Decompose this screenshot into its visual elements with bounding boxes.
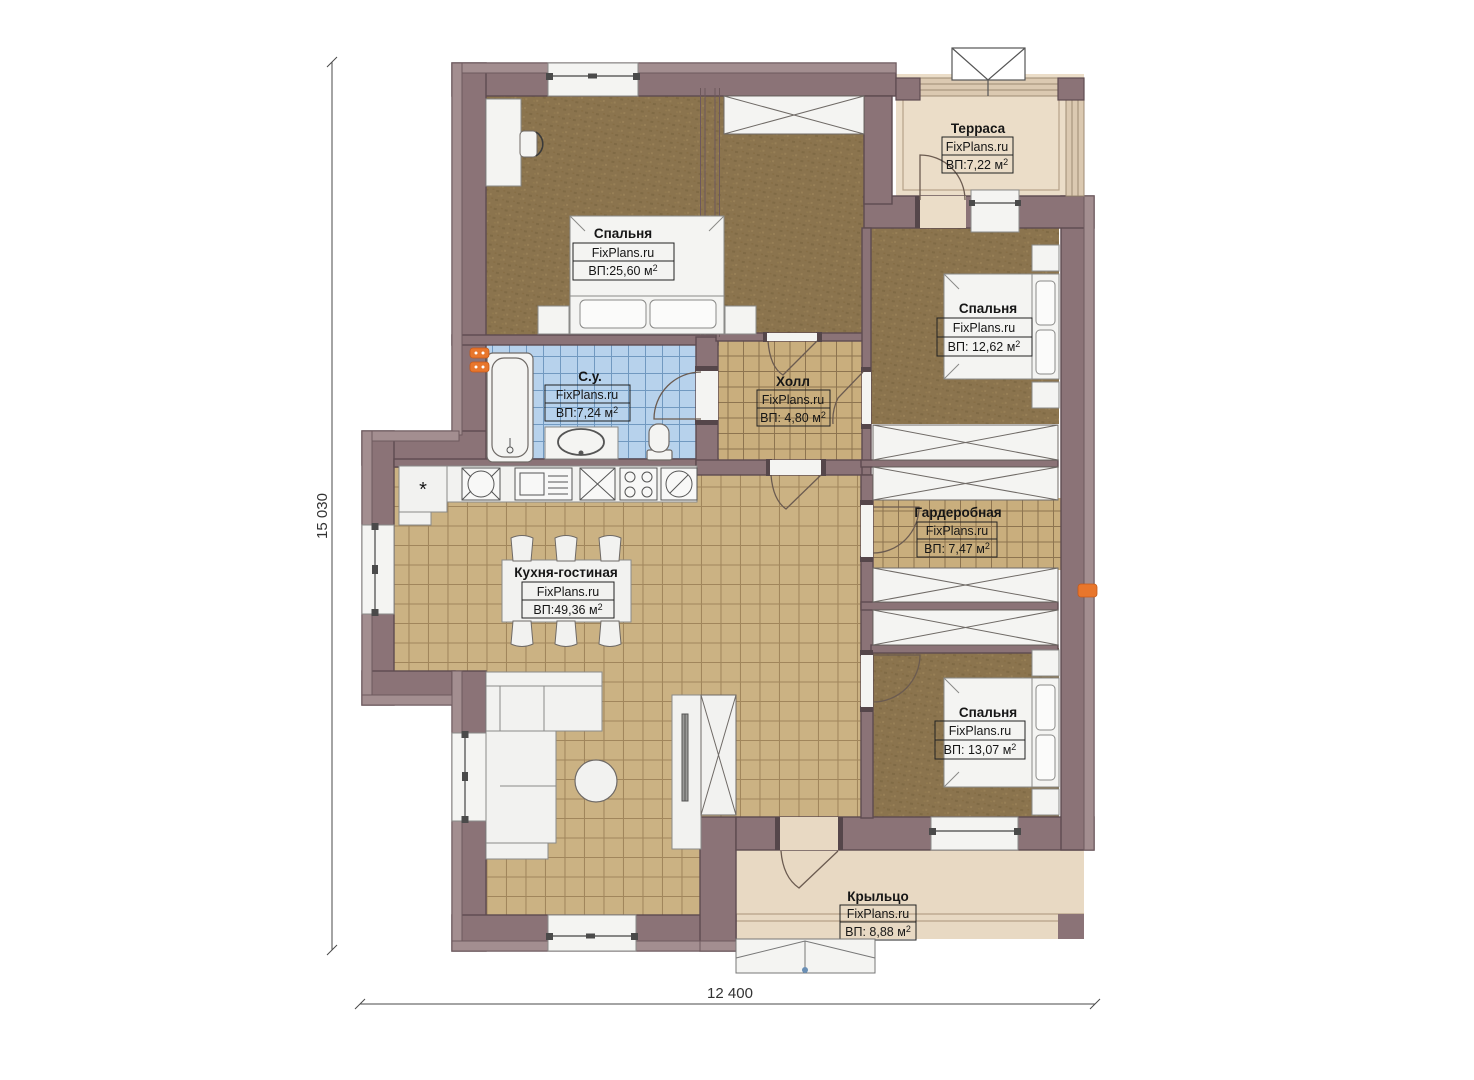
svg-text:FixPlans.ru: FixPlans.ru <box>556 388 619 402</box>
svg-text:15 030: 15 030 <box>314 493 331 539</box>
svg-text:Крыльцо: Крыльцо <box>847 889 908 904</box>
svg-text:Спальня: Спальня <box>959 301 1017 316</box>
svg-text:Спальня: Спальня <box>594 226 652 241</box>
svg-text:FixPlans.ru: FixPlans.ru <box>762 393 825 407</box>
svg-text:ВП:25,60 м2: ВП:25,60 м2 <box>588 263 657 278</box>
svg-text:ВП: 12,62 м2: ВП: 12,62 м2 <box>948 339 1021 354</box>
svg-text:FixPlans.ru: FixPlans.ru <box>946 140 1009 154</box>
svg-text:FixPlans.ru: FixPlans.ru <box>537 585 600 599</box>
svg-text:ВП: 8,88 м2: ВП: 8,88 м2 <box>845 924 911 939</box>
svg-text:ВП: 13,07 м2: ВП: 13,07 м2 <box>944 742 1017 757</box>
svg-text:12 400: 12 400 <box>707 985 753 1002</box>
svg-text:ВП:7,24 м2: ВП:7,24 м2 <box>556 405 618 420</box>
svg-text:ВП: 4,80 м2: ВП: 4,80 м2 <box>760 410 826 425</box>
svg-text:Кухня-гостиная: Кухня-гостиная <box>514 565 617 580</box>
svg-text:FixPlans.ru: FixPlans.ru <box>949 724 1012 738</box>
svg-text:FixPlans.ru: FixPlans.ru <box>926 524 989 538</box>
svg-text:С.у.: С.у. <box>578 369 602 384</box>
svg-text:ВП: 7,47 м2: ВП: 7,47 м2 <box>924 541 990 556</box>
svg-text:*: * <box>419 479 427 501</box>
svg-text:Холл: Холл <box>776 374 810 389</box>
svg-text:ВП:49,36 м2: ВП:49,36 м2 <box>533 602 602 617</box>
svg-text:ВП:7,22 м2: ВП:7,22 м2 <box>946 157 1008 172</box>
svg-text:FixPlans.ru: FixPlans.ru <box>847 907 910 921</box>
svg-text:FixPlans.ru: FixPlans.ru <box>592 246 655 260</box>
svg-text:Терраса: Терраса <box>951 121 1006 136</box>
svg-text:Гардеробная: Гардеробная <box>914 505 1001 520</box>
svg-text:FixPlans.ru: FixPlans.ru <box>953 321 1016 335</box>
svg-text:Спальня: Спальня <box>959 705 1017 720</box>
